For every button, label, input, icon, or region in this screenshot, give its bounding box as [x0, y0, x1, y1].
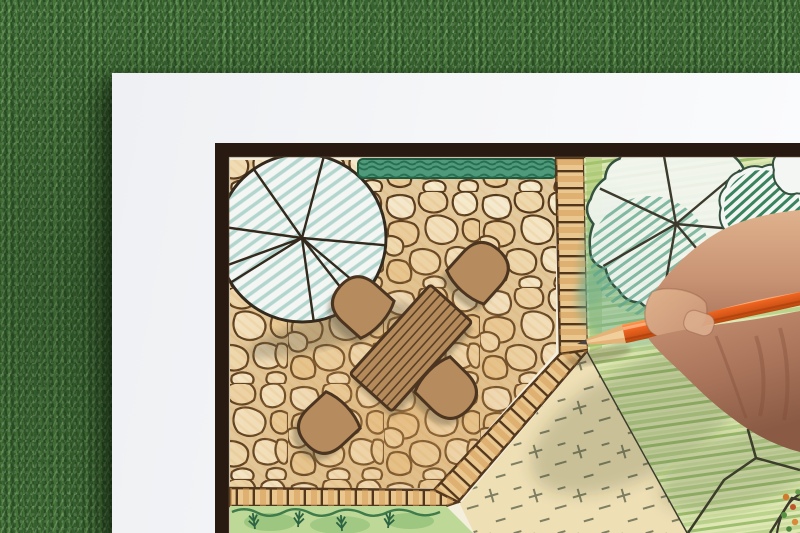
garden-plan-drawing: [0, 0, 800, 533]
planting-bed: [230, 506, 473, 533]
photo-scene: [0, 0, 800, 533]
hedge-strip: [358, 159, 556, 178]
